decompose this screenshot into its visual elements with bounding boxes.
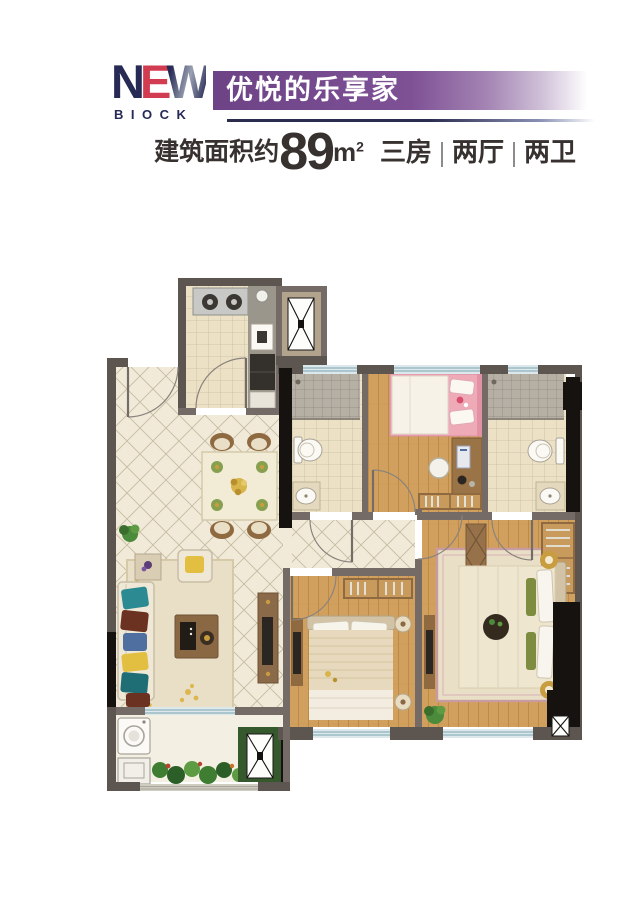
window: [313, 729, 390, 738]
entry: [116, 367, 178, 415]
sofa: [118, 582, 154, 707]
tv-cabinet: [258, 593, 278, 683]
spec-separator: [513, 142, 515, 167]
floor-plan: [88, 272, 600, 807]
window: [443, 729, 533, 738]
utility-shaft: [282, 292, 321, 356]
coffee-table: [175, 615, 218, 658]
logo-letter-w: W: [166, 55, 205, 108]
area-value: 89: [279, 130, 333, 174]
header-rule: [227, 119, 595, 122]
spec-rooms: 三房: [380, 132, 432, 174]
area-unit: m2: [333, 137, 364, 174]
wardrobe: [418, 493, 482, 510]
spec-halls: 两厅: [452, 132, 504, 174]
hallway: [283, 520, 415, 568]
bed: [307, 616, 395, 720]
bed: [459, 562, 566, 692]
logo-letter-n: N: [111, 55, 140, 108]
wardrobe: [343, 578, 413, 599]
area-spec-row: 建筑面积约89m2 三房 两厅 两卫: [154, 130, 576, 174]
window: [508, 365, 538, 374]
side-table: [135, 554, 161, 580]
armchair: [178, 550, 212, 582]
logo-new: NEW: [111, 58, 206, 106]
spec-baths: 两卫: [524, 132, 576, 174]
logo-subtext: BIOCK: [114, 107, 193, 122]
window: [303, 365, 357, 374]
banner-title: 优悦的乐享家: [213, 71, 595, 110]
spec-separator: [441, 142, 443, 167]
window: [394, 365, 480, 374]
logo-letter-e: E: [140, 55, 166, 108]
area-prefix: 建筑面积约: [154, 132, 279, 174]
window: [145, 707, 235, 715]
